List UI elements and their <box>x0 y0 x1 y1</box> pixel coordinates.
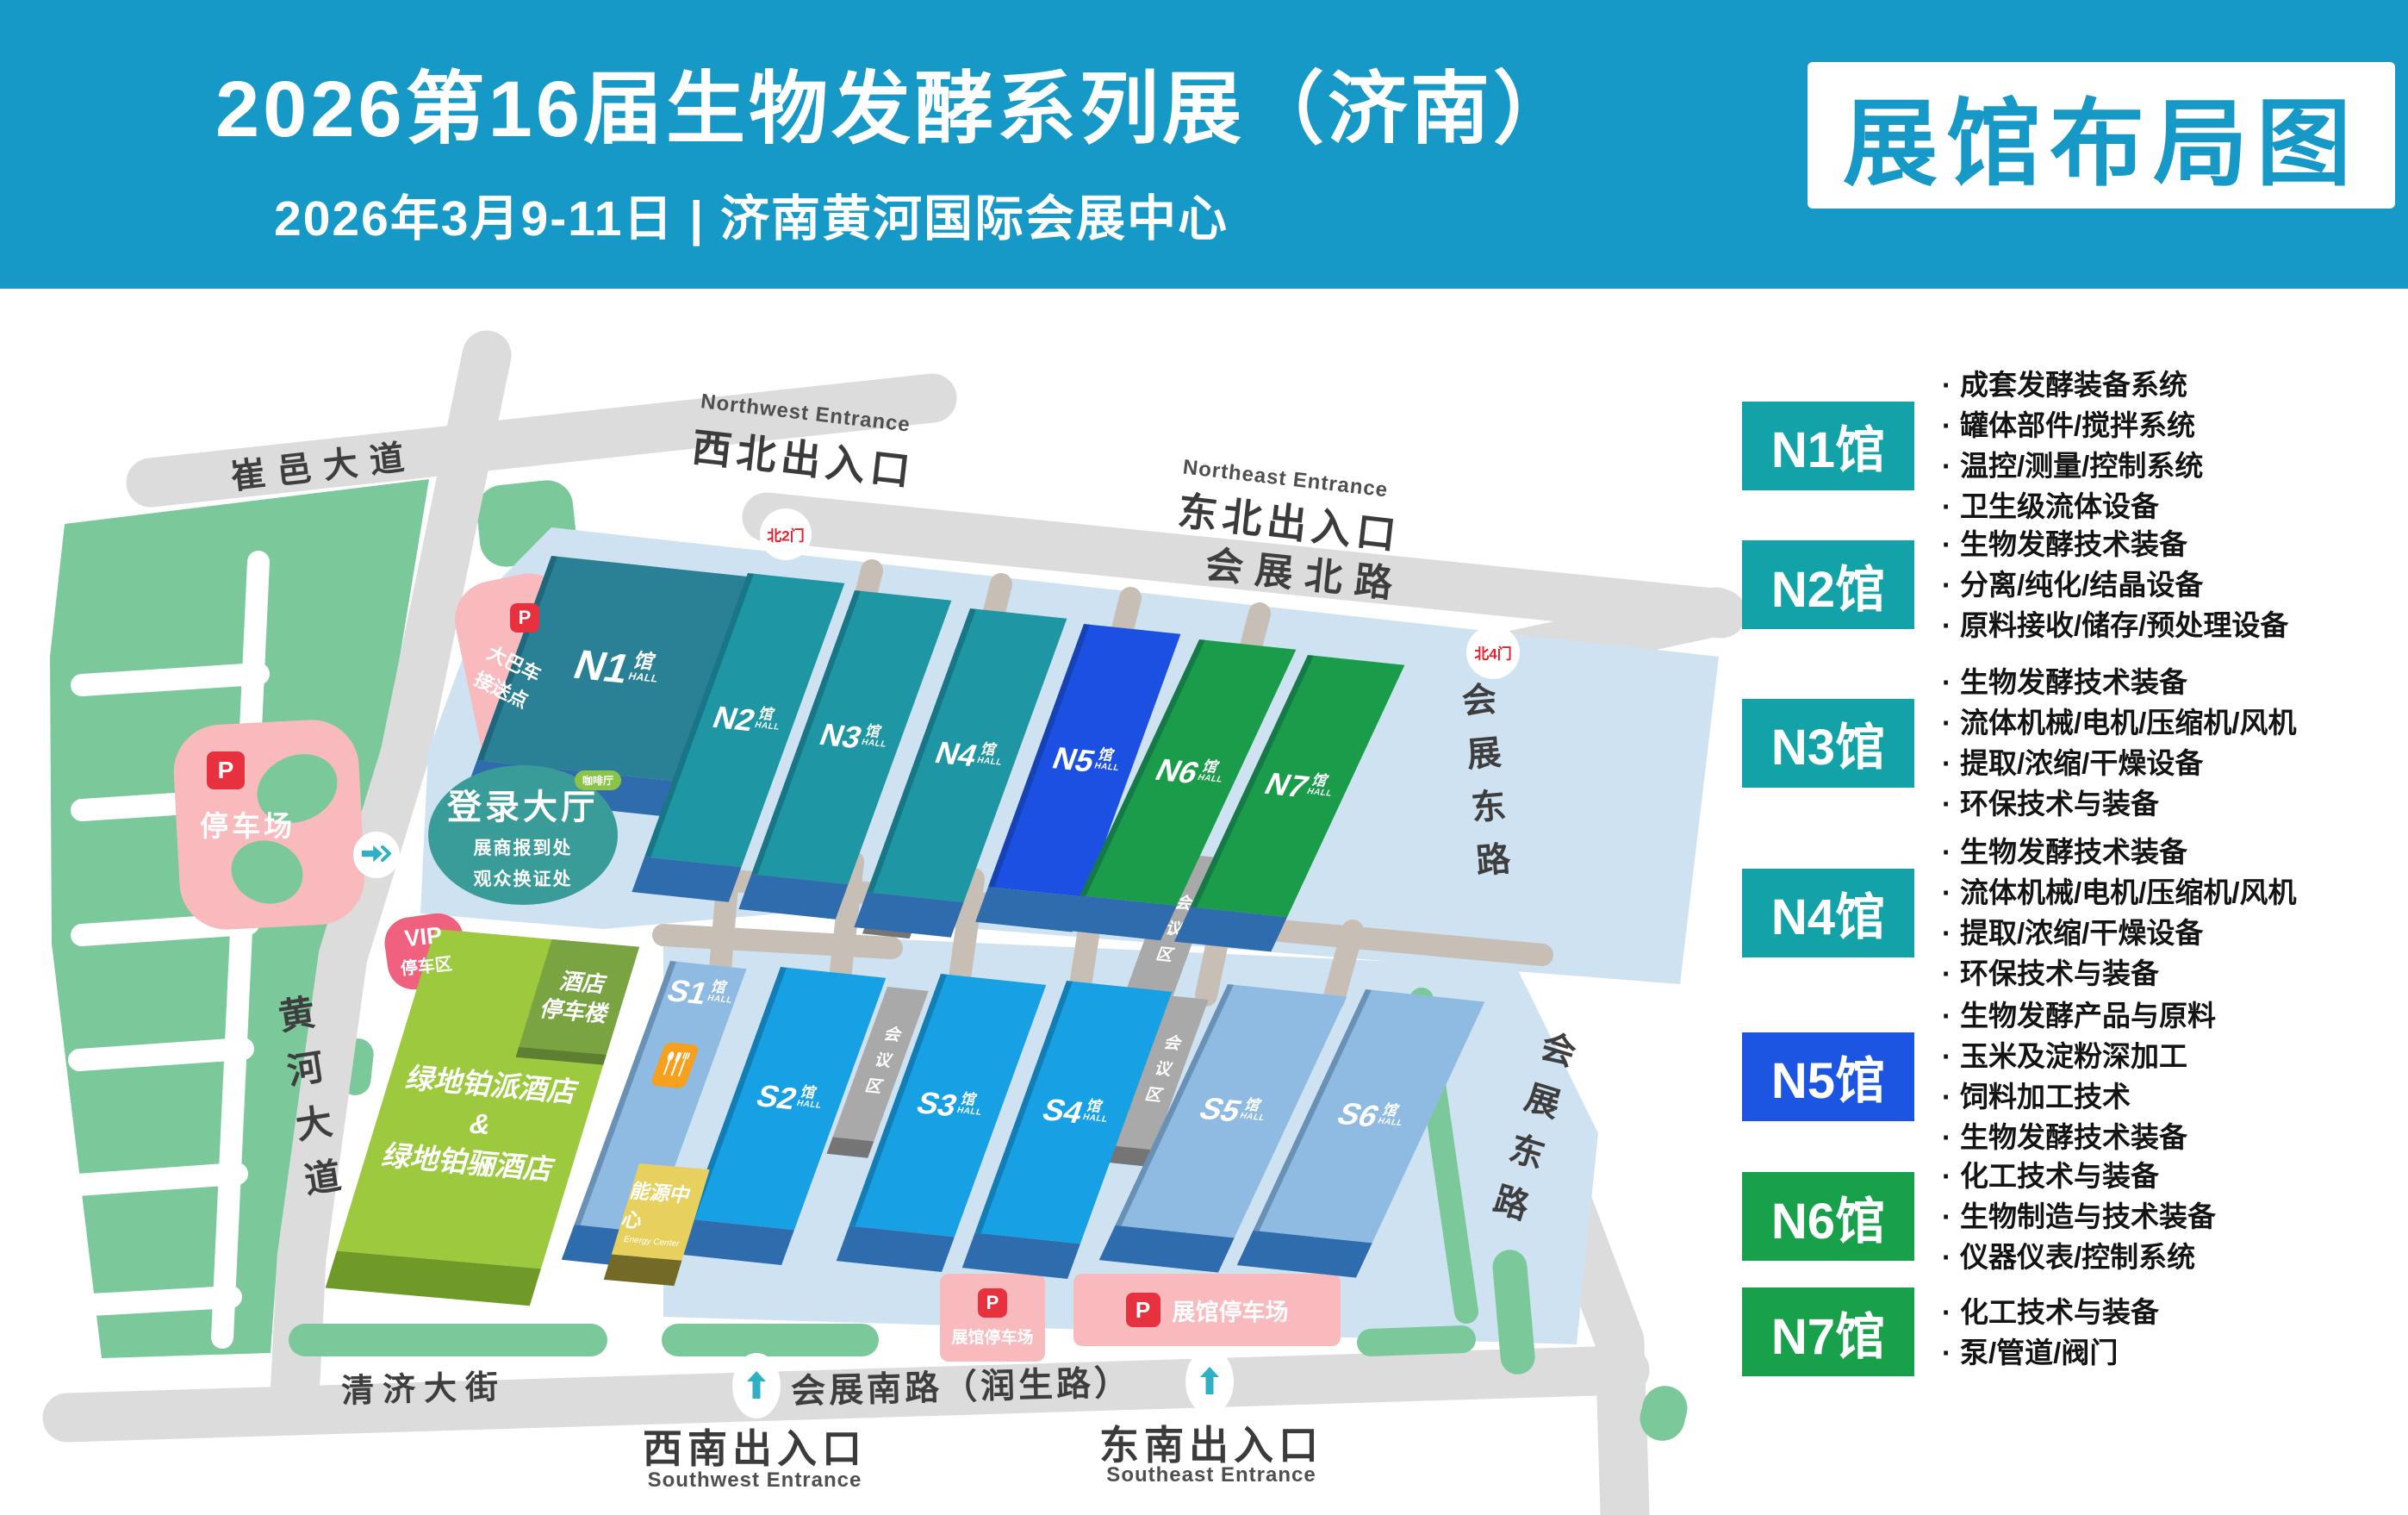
legend-item: 卫生级流体设备 <box>1942 486 2203 527</box>
legend-row-n4: N4馆 生物发酵技术装备 流体机械/电机/压缩机/风机 提取/浓缩/干燥设备 环… <box>1742 832 2397 994</box>
se-entrance-en: Southeast Entrance <box>1106 1463 1316 1487</box>
legend-item: 分离/纯化/结晶设备 <box>1942 564 2288 605</box>
legend-item: 生物发酵技术装备 <box>1942 1117 2216 1157</box>
sw-entrance-en: Southwest Entrance <box>648 1468 862 1493</box>
legend-item: 环保技术与装备 <box>1942 953 2297 994</box>
legend-item: 生物制造与技术装备 <box>1942 1196 2216 1237</box>
legend-box-n4: N4馆 <box>1742 869 1914 957</box>
legend-box-n7: N7馆 <box>1742 1287 1914 1376</box>
restaurant-icon <box>650 1042 700 1089</box>
login-hall-line2: 观众换证处 <box>474 865 573 891</box>
legend-row-n3: N3馆 生物发酵技术装备 流体机械/电机/压缩机/风机 提取/浓缩/干燥设备 环… <box>1742 662 2397 824</box>
legend-item: 罐体部件/搅拌系统 <box>1942 405 2203 446</box>
parking-hall-b-p-icon: P <box>1126 1293 1160 1327</box>
legend-box-n1: N1馆 <box>1742 402 1914 490</box>
legend-list-n5: 生物发酵产品与原料 玉米及淀粉深加工 饲料加工技术 生物发酵技术装备 <box>1942 995 2216 1157</box>
legend-item: 仪器仪表/控制系统 <box>1942 1237 2216 1277</box>
gate-north4-label: 北4门 <box>1474 642 1511 664</box>
legend-item: 饲料加工技术 <box>1942 1076 2216 1117</box>
parking-hall-a: P 展馆停车场 <box>940 1274 1045 1362</box>
page-title: 2026第16届生物发酵系列展（济南） <box>215 45 1576 159</box>
layout-map-badge-text: 展馆布局图 <box>1843 66 2360 204</box>
legend-item: 成套发酵装备系统 <box>1942 365 2203 405</box>
legend-row-n7: N7馆 化工技术与装备 泵/管道/阀门 <box>1742 1287 2397 1376</box>
legend-item: 原料接收/储存/预处理设备 <box>1942 605 2288 645</box>
login-hall-line1: 展商报到处 <box>474 834 573 860</box>
legend-item: 生物发酵技术装备 <box>1942 832 2297 872</box>
legend-list-n4: 生物发酵技术装备 流体机械/电机/压缩机/风机 提取/浓缩/干燥设备 环保技术与… <box>1942 832 2297 994</box>
legend-item: 温控/测量/控制系统 <box>1942 446 2203 486</box>
legend-row-n1: N1馆 成套发酵装备系统 罐体部件/搅拌系统 温控/测量/控制系统 卫生级流体设… <box>1742 365 2397 527</box>
legend-box-n6: N6馆 <box>1742 1172 1914 1261</box>
page-subtitle: 2026年3月9-11日 | 济南黄河国际会展中心 <box>274 179 1229 250</box>
parking-hall-a-p-icon: P <box>978 1288 1007 1318</box>
legend-item: 泵/管道/阀门 <box>1942 1332 2159 1373</box>
legend-item: 提取/浓缩/干燥设备 <box>1942 913 2297 953</box>
legend-row-n6: N6馆 化工技术与装备 生物制造与技术装备 仪器仪表/控制系统 <box>1742 1156 2397 1277</box>
gate-north2-label: 北2门 <box>767 524 804 546</box>
road-label-qingji: 清济大街 <box>340 1360 507 1412</box>
legend-list-n2: 生物发酵技术装备 分离/纯化/结晶设备 原料接收/储存/预处理设备 <box>1942 524 2288 645</box>
legend-item: 提取/浓缩/干燥设备 <box>1942 743 2297 783</box>
legend-list-n7: 化工技术与装备 泵/管道/阀门 <box>1942 1292 2159 1373</box>
legend-box-n2: N2馆 <box>1742 540 1914 629</box>
legend-item: 生物发酵技术装备 <box>1942 524 2288 564</box>
vip-parking-label: VIP 停车区 <box>383 920 466 981</box>
legend-list-n1: 成套发酵装备系统 罐体部件/搅拌系统 温控/测量/控制系统 卫生级流体设备 <box>1942 365 2203 527</box>
legend-row-n2: N2馆 生物发酵技术装备 分离/纯化/结晶设备 原料接收/储存/预处理设备 <box>1742 524 2397 645</box>
parking-west-p-icon: P <box>207 751 245 789</box>
coffee-badge: 咖啡厅 <box>575 770 621 790</box>
legend-item: 生物发酵产品与原料 <box>1942 995 2216 1036</box>
header-band: 2026第16届生物发酵系列展（济南） 2026年3月9-11日 | 济南黄河国… <box>0 0 2408 289</box>
legend-item: 环保技术与装备 <box>1942 783 2297 824</box>
bus-shuttle-p-icon: P <box>510 603 539 633</box>
login-hall: 咖啡厅 登录大厅 展商报到处 观众换证处 <box>428 765 618 905</box>
legend-item: 化工技术与装备 <box>1942 1292 2159 1332</box>
legend-item: 流体机械/电机/压缩机/风机 <box>1942 872 2297 913</box>
legend-item: 生物发酵技术装备 <box>1942 662 2297 702</box>
layout-map-badge: 展馆布局图 <box>1808 62 2395 209</box>
legend-list-n3: 生物发酵技术装备 流体机械/电机/压缩机/风机 提取/浓缩/干燥设备 环保技术与… <box>1942 662 2297 824</box>
legend-row-n5: N5馆 生物发酵产品与原料 玉米及淀粉深加工 饲料加工技术 生物发酵技术装备 <box>1742 995 2397 1157</box>
parking-hall-b-label: 展馆停车场 <box>1173 1294 1289 1327</box>
parking-hall-b: P 展馆停车场 <box>1073 1274 1341 1346</box>
parking-west-label: 停车场 <box>200 803 296 845</box>
sw-entrance-cn: 西南出入口 <box>643 1418 867 1474</box>
legend-box-n5: N5馆 <box>1742 1032 1914 1121</box>
parking-hall-a-label: 展馆停车场 <box>951 1325 1033 1348</box>
legend-item: 化工技术与装备 <box>1942 1156 2216 1196</box>
legend-item: 流体机械/电机/压缩机/风机 <box>1942 702 2297 743</box>
hotel-name: 绿地铂派酒店 & 绿地铂骊酒店 <box>377 1058 582 1189</box>
legend-box-n3: N3馆 <box>1742 699 1914 788</box>
legend-list-n6: 化工技术与装备 生物制造与技术装备 仪器仪表/控制系统 <box>1942 1156 2216 1277</box>
legend-item: 玉米及淀粉深加工 <box>1942 1036 2216 1076</box>
road-label-huizhan-south: 会展南路（润生路） <box>790 1355 1132 1413</box>
